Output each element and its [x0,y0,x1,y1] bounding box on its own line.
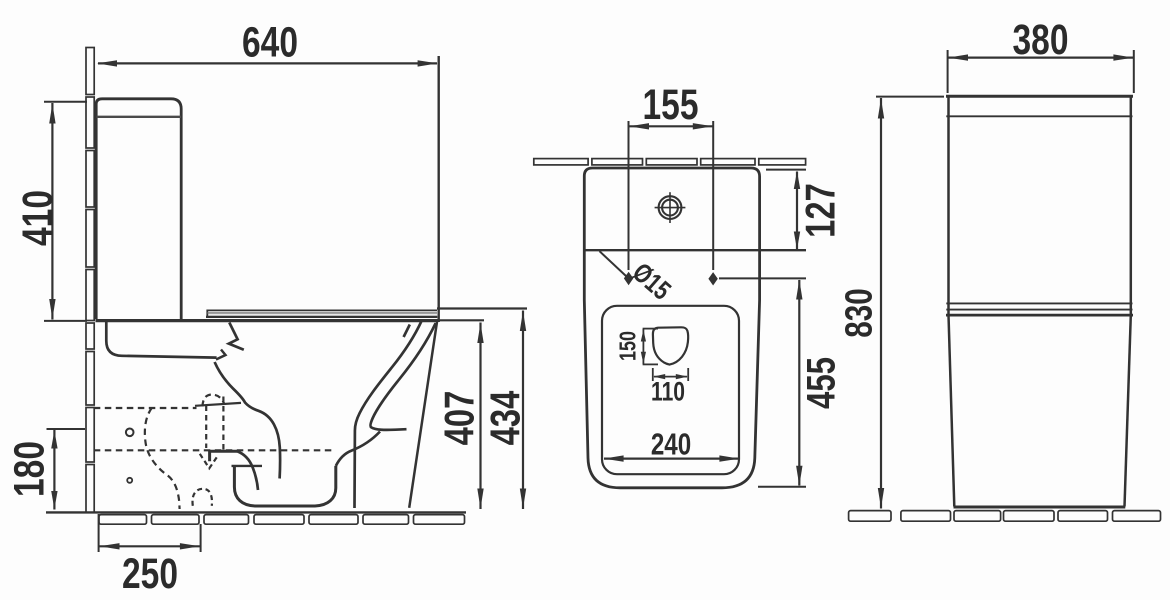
svg-text:380: 380 [1013,16,1069,64]
svg-text:150: 150 [616,331,642,361]
svg-text:410: 410 [14,190,62,246]
svg-text:110: 110 [651,377,685,407]
svg-text:240: 240 [651,427,691,462]
svg-text:830: 830 [838,288,880,337]
svg-text:455: 455 [799,357,844,409]
svg-text:250: 250 [122,550,178,598]
svg-text:640: 640 [242,19,298,67]
svg-text:127: 127 [796,183,843,238]
svg-text:407: 407 [435,391,482,446]
svg-text:155: 155 [643,81,699,129]
svg-text:434: 434 [481,391,528,446]
svg-text:180: 180 [6,441,54,497]
